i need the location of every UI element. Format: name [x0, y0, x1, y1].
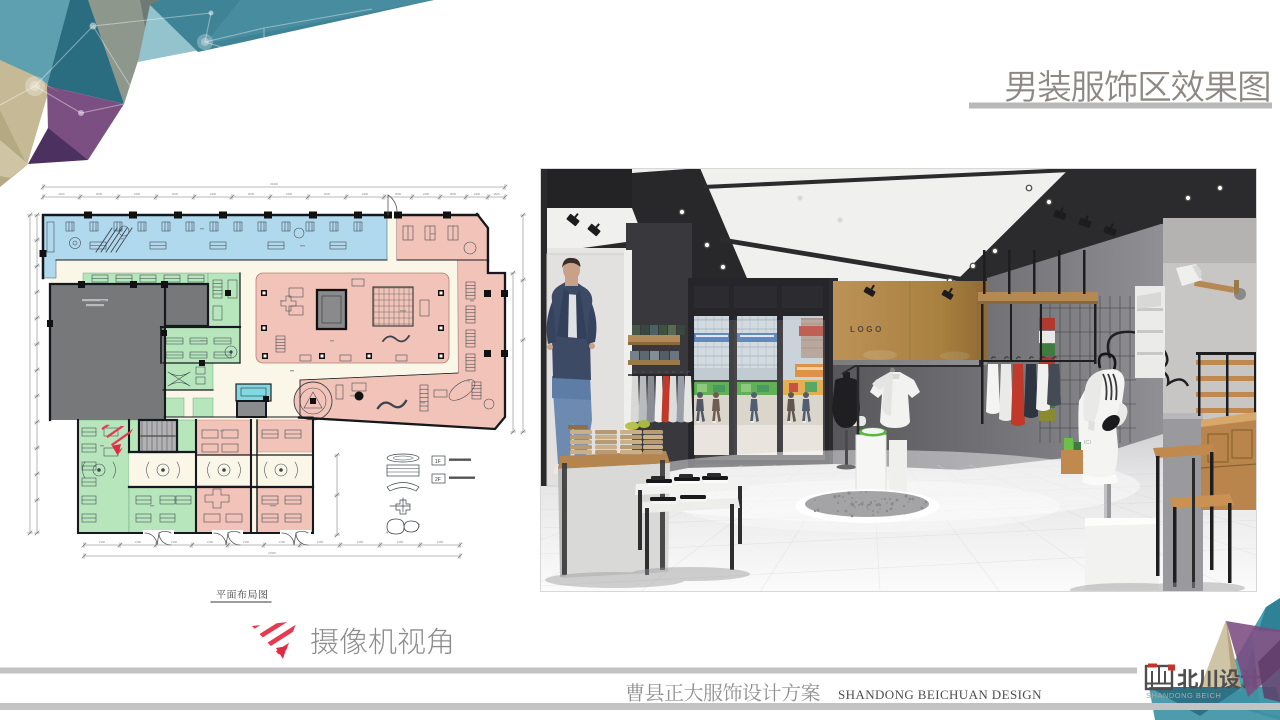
svg-text:2150: 2150: [99, 540, 106, 544]
svg-text:2400: 2400: [286, 192, 293, 196]
svg-text:3600: 3600: [395, 192, 402, 196]
svg-text:2400: 2400: [58, 192, 65, 196]
svg-text:3600: 3600: [96, 192, 103, 196]
svg-text:LOGO: LOGO: [850, 325, 884, 334]
svg-text:2400: 2400: [210, 192, 217, 196]
svg-text:2150: 2150: [317, 540, 324, 544]
svg-text:3600: 3600: [172, 192, 179, 196]
svg-text:3600: 3600: [493, 192, 500, 196]
svg-text:2150: 2150: [207, 540, 214, 544]
svg-text:32400: 32400: [270, 182, 278, 186]
svg-text:2150: 2150: [357, 540, 364, 544]
svg-text:SHANDONG BEICHUAN DESIGN: SHANDONG BEICHUAN DESIGN: [838, 687, 1042, 702]
svg-text:SHANDONG BEICH: SHANDONG BEICH: [1146, 691, 1221, 700]
svg-text:2F: 2F: [435, 477, 441, 483]
svg-text:2400: 2400: [362, 192, 369, 196]
svg-text:2150: 2150: [243, 540, 250, 544]
svg-text:3600: 3600: [248, 192, 255, 196]
svg-text:3600: 3600: [450, 192, 457, 196]
svg-text:2150: 2150: [171, 540, 178, 544]
svg-text:2150: 2150: [437, 540, 444, 544]
svg-text:2150: 2150: [135, 540, 142, 544]
svg-text:21500: 21500: [268, 551, 276, 555]
svg-text:ICI: ICI: [1084, 440, 1092, 446]
svg-text:2400: 2400: [134, 192, 141, 196]
svg-text:2400: 2400: [423, 192, 430, 196]
svg-text:2400: 2400: [474, 192, 481, 196]
svg-text:2150: 2150: [279, 540, 286, 544]
svg-text:2150: 2150: [397, 540, 404, 544]
svg-text:1F: 1F: [435, 459, 441, 465]
svg-text:3600: 3600: [324, 192, 331, 196]
